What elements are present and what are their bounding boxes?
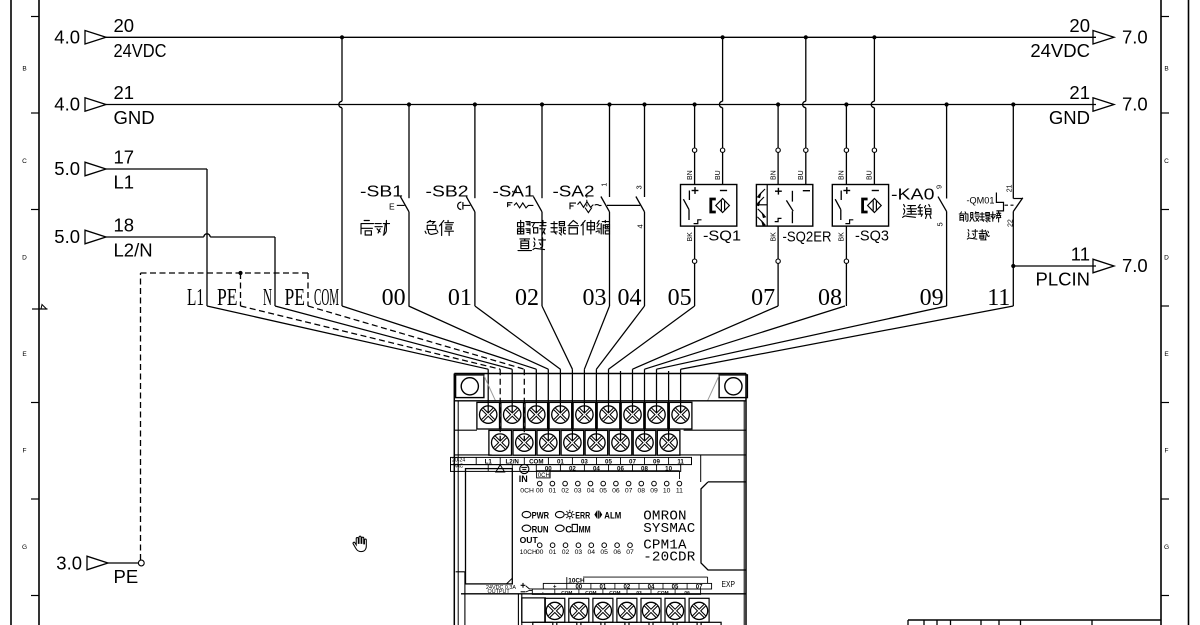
svg-text:G: G	[22, 544, 27, 551]
svg-text:COM: COM	[529, 458, 543, 465]
svg-text:17: 17	[114, 147, 135, 168]
svg-text:ERR: ERR	[575, 511, 590, 521]
svg-text:11: 11	[987, 285, 1010, 311]
svg-text:21: 21	[1069, 82, 1090, 103]
svg-text:-KA0: -KA0	[891, 187, 935, 204]
svg-text:1: 1	[510, 189, 519, 193]
svg-text:BK: BK	[770, 232, 777, 242]
svg-text:11: 11	[677, 458, 684, 465]
svg-text:-QM01: -QM01	[967, 195, 995, 206]
svg-text:9: 9	[935, 185, 944, 189]
svg-text:N: N	[263, 285, 272, 311]
svg-text:L1: L1	[485, 458, 493, 465]
svg-text:03: 03	[574, 487, 582, 494]
svg-text:BU: BU	[867, 170, 874, 180]
svg-text:02: 02	[561, 487, 569, 494]
svg-text:07: 07	[751, 285, 775, 311]
svg-text:D: D	[1164, 255, 1169, 262]
svg-text:L2/N: L2/N	[114, 240, 153, 261]
svg-text:07: 07	[626, 549, 634, 556]
svg-text:11: 11	[676, 487, 683, 494]
svg-text:-SB1: -SB1	[360, 184, 403, 201]
svg-text:PWR: PWR	[532, 511, 550, 521]
svg-text:01: 01	[448, 285, 472, 311]
svg-text:OUTPUT: OUTPUT	[488, 589, 511, 595]
svg-text:E: E	[22, 351, 27, 358]
svg-text:05: 05	[599, 487, 607, 494]
svg-text:C: C	[565, 524, 572, 534]
svg-text:05: 05	[605, 458, 612, 465]
svg-text:20: 20	[1069, 15, 1090, 36]
svg-text:05: 05	[600, 549, 608, 556]
svg-text:01: 01	[557, 458, 564, 465]
svg-text:09: 09	[920, 285, 944, 311]
svg-text:BU: BU	[798, 170, 805, 180]
svg-text:COM: COM	[609, 590, 620, 596]
svg-text:5.0: 5.0	[54, 158, 80, 179]
svg-text:COM: COM	[314, 285, 339, 311]
svg-text:-SQ2ER: -SQ2ER	[783, 229, 832, 246]
svg-text:00: 00	[382, 285, 406, 311]
svg-text:L2/N: L2/N	[505, 458, 519, 465]
svg-text:24VDC: 24VDC	[114, 40, 167, 61]
svg-text:7.0: 7.0	[1122, 255, 1148, 276]
svg-text:EXP: EXP	[722, 580, 736, 589]
svg-text:C: C	[1164, 158, 1169, 165]
svg-text:00: 00	[536, 487, 544, 494]
svg-text:04: 04	[587, 487, 595, 494]
svg-text:BN: BN	[687, 170, 694, 180]
svg-text:06: 06	[613, 549, 621, 556]
svg-text:MM: MM	[579, 524, 591, 534]
svg-text:03: 03	[583, 285, 607, 311]
svg-text:05: 05	[668, 285, 692, 311]
svg-text:BU: BU	[715, 170, 722, 180]
svg-text:01: 01	[549, 487, 557, 494]
svg-text:06: 06	[684, 590, 690, 596]
svg-text:PE: PE	[114, 566, 139, 587]
svg-text:07: 07	[696, 585, 703, 591]
svg-text:BN: BN	[770, 170, 777, 180]
svg-text:08: 08	[641, 466, 648, 473]
svg-text:4.0: 4.0	[54, 94, 80, 115]
svg-text:04: 04	[593, 466, 600, 473]
svg-text:COM: COM	[561, 590, 572, 596]
svg-text:GND: GND	[1049, 107, 1090, 128]
svg-text:02: 02	[569, 466, 576, 473]
svg-text:20: 20	[114, 15, 135, 36]
svg-text:4.0: 4.0	[54, 27, 80, 48]
svg-text:03: 03	[575, 549, 583, 556]
svg-text:00: 00	[545, 466, 552, 473]
svg-text:PE: PE	[217, 285, 238, 311]
svg-text:E: E	[389, 202, 395, 212]
svg-text:5.0: 5.0	[54, 226, 80, 247]
svg-text:L1: L1	[187, 285, 204, 311]
svg-text:-SQ3: -SQ3	[855, 228, 889, 245]
svg-text:02: 02	[515, 285, 539, 311]
svg-text:09: 09	[653, 458, 660, 465]
svg-text:B: B	[22, 66, 26, 73]
svg-text:10CH: 10CH	[520, 549, 537, 556]
svg-text:COM: COM	[585, 590, 596, 596]
svg-text:03: 03	[581, 458, 588, 465]
svg-text:04: 04	[588, 549, 596, 556]
svg-text:F: F	[23, 448, 27, 455]
svg-text:PLCIN: PLCIN	[1036, 269, 1091, 290]
svg-text:-SQ1: -SQ1	[703, 228, 741, 245]
svg-text:08: 08	[638, 487, 646, 494]
svg-text:01: 01	[549, 549, 557, 556]
svg-text:0CH: 0CH	[520, 487, 534, 494]
svg-text:C: C	[22, 158, 27, 165]
svg-text:SYSMAC: SYSMAC	[643, 521, 695, 537]
svg-text:E: E	[1164, 351, 1169, 358]
svg-text:BK: BK	[839, 232, 846, 242]
svg-text:22: 22	[1008, 219, 1015, 227]
svg-text:08: 08	[818, 285, 842, 311]
svg-text:-SA2: -SA2	[553, 184, 595, 201]
svg-text:7.0: 7.0	[1122, 27, 1148, 48]
svg-text:5: 5	[935, 222, 944, 226]
svg-text:1: 1	[599, 183, 608, 187]
svg-text:BK: BK	[687, 232, 694, 242]
svg-text:D: D	[22, 255, 27, 262]
svg-text:3.0: 3.0	[56, 553, 82, 574]
svg-text:11: 11	[1071, 244, 1090, 265]
svg-text:PE: PE	[285, 285, 306, 311]
svg-text:00: 00	[536, 549, 544, 556]
svg-text:-SB2: -SB2	[426, 184, 469, 201]
svg-text:F: F	[1165, 448, 1169, 455]
svg-text:04: 04	[618, 285, 642, 311]
svg-text:10: 10	[665, 466, 672, 473]
svg-text:07: 07	[625, 487, 633, 494]
svg-text:21: 21	[114, 82, 135, 103]
svg-text:COM: COM	[657, 590, 668, 596]
svg-text:GND: GND	[114, 107, 155, 128]
svg-text:03: 03	[636, 590, 642, 596]
svg-text:3: 3	[634, 185, 643, 189]
svg-text:ALM: ALM	[604, 511, 621, 521]
svg-text:4: 4	[636, 224, 645, 228]
svg-text:24VDC: 24VDC	[1030, 40, 1090, 61]
svg-text:RUN: RUN	[532, 524, 549, 534]
svg-text:BN: BN	[839, 170, 846, 180]
svg-text:18: 18	[114, 215, 135, 236]
svg-text:21: 21	[1007, 184, 1014, 192]
svg-text:B: B	[1164, 66, 1168, 73]
svg-text:VAC: VAC	[453, 464, 464, 470]
svg-text:G: G	[1164, 544, 1169, 551]
svg-text:09: 09	[650, 487, 658, 494]
svg-text:07: 07	[629, 458, 636, 465]
svg-text:0CH: 0CH	[538, 473, 550, 479]
svg-text:OUT: OUT	[520, 535, 539, 545]
svg-text:-20CDR: -20CDR	[643, 549, 696, 565]
svg-text:7.0: 7.0	[1122, 94, 1148, 115]
svg-text:IN: IN	[519, 474, 528, 484]
svg-text:L1: L1	[114, 172, 135, 193]
svg-text:02: 02	[562, 549, 570, 556]
svg-text:06: 06	[617, 466, 624, 473]
svg-text:06: 06	[612, 487, 620, 494]
svg-text:10: 10	[663, 487, 671, 494]
